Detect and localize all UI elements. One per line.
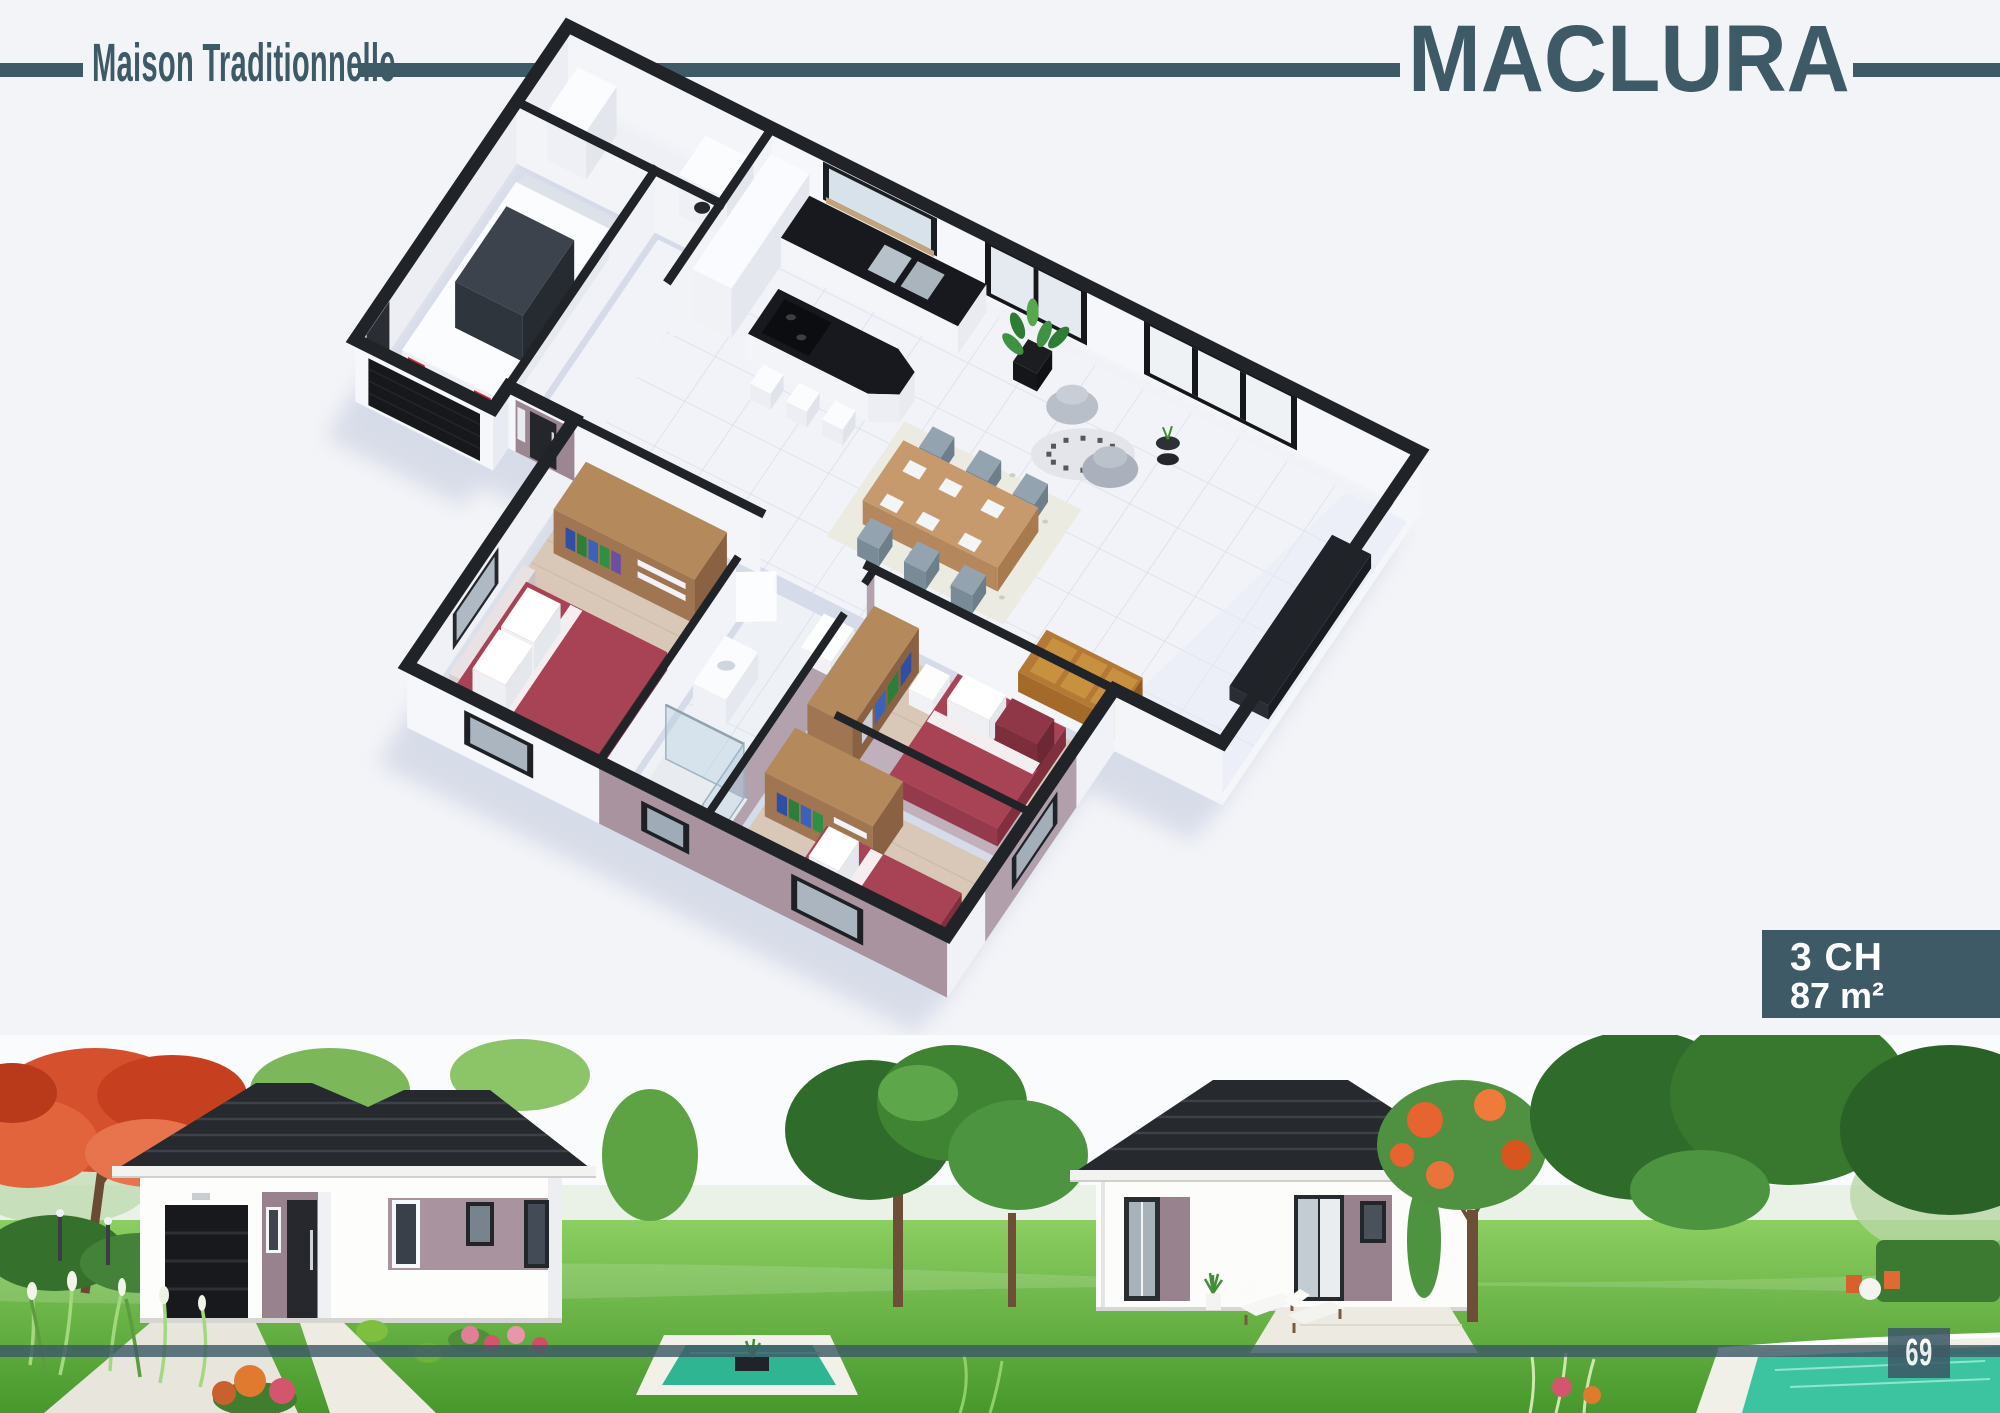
left-house-roof-tiles — [100, 1103, 600, 1151]
left-house-wall — [140, 1178, 562, 1323]
left-house-roof — [118, 1083, 590, 1168]
pool-area — [1696, 1271, 2000, 1413]
plan-furniture — [402, 67, 1371, 975]
page-title: MACLURA — [1408, 12, 1850, 107]
terrace-plant — [1205, 1273, 1222, 1310]
water-feature-deck — [636, 1335, 858, 1395]
right-house-roof — [1075, 1080, 1492, 1172]
right-house-roof-tiles — [1060, 1101, 1500, 1149]
patio-chair-2 — [1884, 1271, 1900, 1289]
brochure-page: Maison Traditionnelle MACLURA — [0, 0, 2000, 1413]
plan-partitions — [508, 102, 1114, 878]
plan-shadow — [325, 104, 1408, 1034]
patio-table — [1859, 1278, 1881, 1300]
entry-sidelight-window — [269, 1210, 278, 1250]
left-house-window-accent-band — [388, 1198, 548, 1270]
orange-flower-tree — [1377, 1080, 1547, 1322]
plan-floors — [373, 104, 1407, 987]
left-house-fascia — [112, 1166, 596, 1176]
right-house-fascia — [1070, 1170, 1498, 1180]
right-house-accent-panel-right — [1344, 1195, 1392, 1301]
header-rule-middle — [358, 63, 1400, 77]
footer-bar — [0, 1345, 2000, 1357]
right-house-render — [1060, 1080, 1500, 1353]
left-house-window-3 — [524, 1200, 549, 1268]
front-walk — [300, 1323, 436, 1413]
left-house-window-1 — [396, 1204, 416, 1264]
right-house-window-left — [1129, 1202, 1155, 1296]
right-house-wall — [1096, 1182, 1470, 1310]
category-label: Maison Traditionnelle — [92, 36, 396, 90]
left-house-window-2 — [470, 1206, 490, 1242]
patio-chair-1 — [1846, 1275, 1862, 1293]
plan-far-walls — [355, 26, 1420, 805]
plan-near-walls — [355, 340, 1222, 998]
left-house-render — [100, 1083, 600, 1323]
header-rule-right — [1853, 63, 2000, 77]
page-number: 69 — [1905, 1332, 1932, 1375]
header-rule-left — [0, 63, 83, 77]
right-house-small-window — [1364, 1205, 1382, 1239]
foreground-grasses — [27, 1271, 1601, 1413]
right-house-bay-door — [1294, 1195, 1344, 1301]
grass-highlight — [0, 1263, 2000, 1303]
bedrooms-label: 3 CH — [1790, 938, 2000, 978]
left-house-front-door — [287, 1200, 317, 1318]
right-trees — [1530, 1035, 2000, 1302]
floor-plan-3d — [0, 0, 2000, 1413]
plan-wall-caps — [355, 26, 1420, 936]
horizon-haze — [0, 1185, 2000, 1245]
grass — [0, 1220, 2000, 1413]
right-house-accent-panel-left — [1160, 1197, 1190, 1301]
area-label: 87 m² — [1790, 978, 2000, 1014]
middle-trees — [785, 1045, 1088, 1307]
spec-badge: 3 CH 87 m² — [1762, 930, 2000, 1018]
lounge-chairs — [1236, 1281, 1346, 1333]
left-hedge — [0, 1209, 200, 1293]
left-house-entry-accent-wall — [262, 1192, 318, 1318]
flamboyant-tree-left — [0, 1048, 254, 1293]
left-house-garden — [44, 1320, 858, 1413]
background-trees — [0, 1039, 2000, 1255]
page-number-badge: 69 — [1888, 1328, 1950, 1378]
driveway — [44, 1323, 298, 1413]
right-hedge — [1876, 1240, 2000, 1302]
tall-shrub — [1407, 1182, 1441, 1298]
left-house-garage-door — [165, 1205, 248, 1318]
